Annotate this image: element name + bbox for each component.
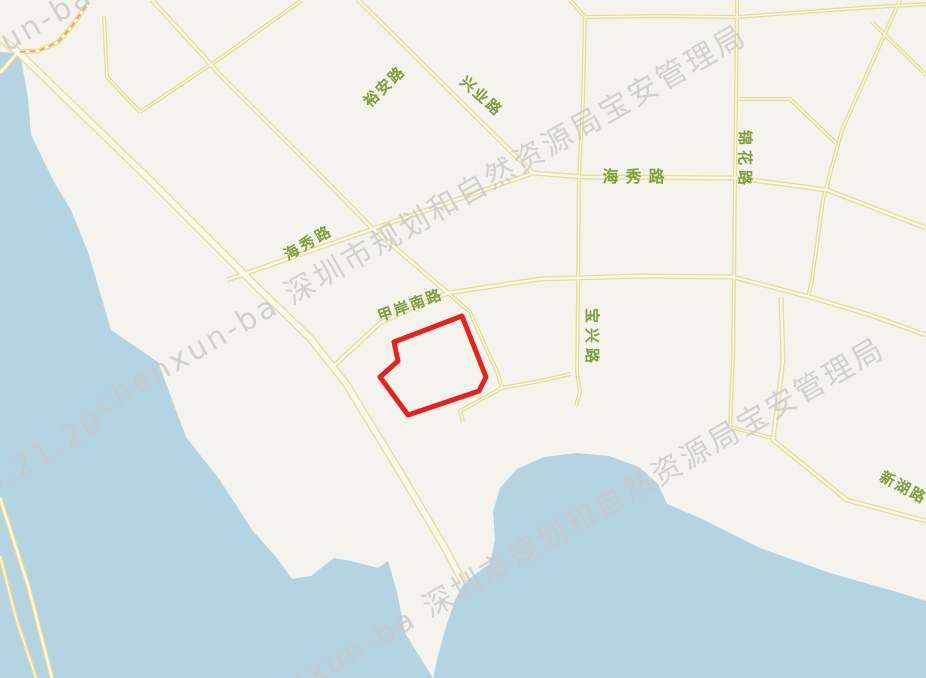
road-label-3: 海秀路: [602, 167, 671, 186]
road-label-5: 宝兴路: [583, 308, 601, 368]
map-viewport[interactable]: 裕安路兴业路海秀路海秀路甲岸南路宝兴路锦花路新湖路 chenxun-ba 深圳市…: [0, 0, 926, 678]
road-label-6: 锦花路: [736, 130, 754, 190]
map-canvas[interactable]: 裕安路兴业路海秀路海秀路甲岸南路宝兴路锦花路新湖路 chenxun-ba 深圳市…: [0, 0, 926, 678]
